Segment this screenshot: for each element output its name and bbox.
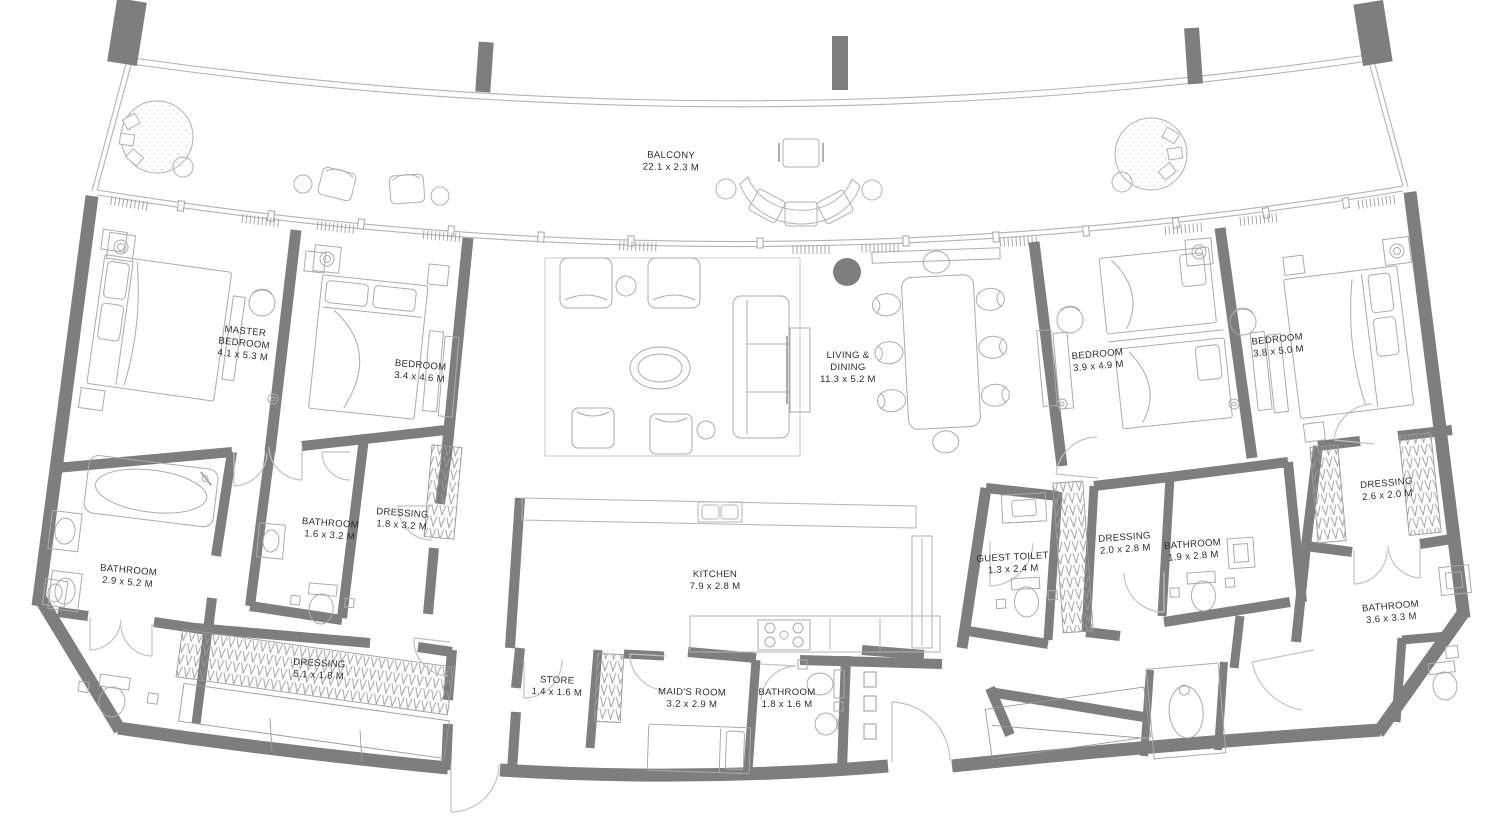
- svg-text:1.9 x 2.8 M: 1.9 x 2.8 M: [1168, 549, 1219, 564]
- balcony-chair-left-2: [389, 173, 425, 204]
- living-side-table: [616, 276, 636, 296]
- column: [833, 258, 861, 286]
- room-label-kitchen: KITCHEN 7.9 x 2.8 M: [690, 569, 741, 592]
- room-label-living-dining: LIVING & DINING 11.3 x 5.2 M: [820, 350, 876, 385]
- room-label-dressing-3: DRESSING 2.0 x 2.8 M: [1098, 530, 1152, 557]
- bathroom3-vanity: [1227, 537, 1255, 569]
- svg-text:7.9 x 2.8 M: 7.9 x 2.8 M: [690, 581, 741, 592]
- planter-right: [1112, 118, 1187, 192]
- room-label-master-bedroom: MASTER BEDROOM 4.1 x 5.3 M: [217, 323, 272, 363]
- balcony-chair-left-1: [317, 166, 357, 202]
- room-label-bathroom-2: BATHROOM 1.6 x 3.2 M: [301, 516, 360, 543]
- sofa-side-table-left: [716, 179, 736, 199]
- door-arc: [121, 624, 152, 656]
- svg-text:STORE: STORE: [540, 674, 575, 686]
- balcony-structure: [92, 55, 1408, 247]
- svg-text:1.8 x 3.2 M: 1.8 x 3.2 M: [376, 518, 427, 533]
- bedroom3-armchair: [1057, 307, 1083, 333]
- master-armchair: [249, 290, 275, 316]
- maid-sink: [815, 713, 837, 735]
- living-armchair-1: [560, 258, 612, 308]
- svg-text:1.4 x 1.6 M: 1.4 x 1.6 M: [531, 686, 582, 699]
- bedroom2-bed: [290, 251, 450, 421]
- curved-sofa: [740, 177, 860, 226]
- room-label-store: STORE 1.4 x 1.6 M: [531, 674, 583, 699]
- svg-text:2.0 x 2.8 M: 2.0 x 2.8 M: [1100, 542, 1151, 557]
- bedroom2-ac-unit: [313, 245, 342, 274]
- toilet-3: [1169, 570, 1237, 613]
- svg-text:LIVING &: LIVING &: [827, 350, 870, 361]
- balcony-right-end: [1367, 55, 1408, 187]
- svg-text:1.8 x 1.6 M: 1.8 x 1.6 M: [762, 699, 813, 710]
- sofa-side-table-right: [862, 180, 882, 200]
- room-name: BALCONY: [647, 150, 695, 162]
- door-arc: [1252, 650, 1314, 710]
- floor-grilles: [111, 195, 1395, 254]
- room-label-bedroom-4: BEDROOM 3.8 x 5.0 M: [1251, 331, 1305, 359]
- room-label-bathroom-master: BATHROOM 2.9 x 5.2 M: [99, 563, 158, 591]
- hall-niches: [864, 672, 876, 739]
- maid-bed: [647, 724, 751, 774]
- room-label-bedroom-2: BEDROOM 3.4 x 4.6 M: [393, 358, 446, 385]
- balcony-side-table-2: [431, 187, 449, 205]
- floor-plan-page: BALCONY 22.1 x 2.3 M MASTER BEDROOM 4.1 …: [0, 0, 1500, 816]
- ottoman-1: [572, 408, 614, 448]
- room-dims: 22.1 x 2.3 M: [643, 162, 700, 174]
- svg-text:BATHROOM: BATHROOM: [758, 687, 815, 698]
- door-arc: [1124, 572, 1164, 612]
- room-label-bathroom-3: BATHROOM 1.9 x 2.8 M: [1164, 537, 1223, 564]
- svg-text:MAID'S ROOM: MAID'S ROOM: [658, 686, 726, 698]
- door-arc: [451, 764, 499, 812]
- door-arc: [1388, 544, 1420, 578]
- living-round-table: [697, 421, 715, 439]
- balcony-outer-edge-2: [131, 61, 1369, 107]
- wardrobes: [176, 433, 1441, 762]
- svg-text:KITCHEN: KITCHEN: [693, 569, 737, 580]
- svg-text:3.2 x 2.9 M: 3.2 x 2.9 M: [666, 699, 717, 711]
- balcony-outer-edge: [133, 55, 1367, 101]
- tv-unit: [787, 328, 810, 412]
- svg-text:1.6 x 3.2 M: 1.6 x 3.2 M: [304, 528, 355, 543]
- svg-text:DINING: DINING: [830, 362, 865, 373]
- coffee-table: [630, 347, 690, 389]
- wardrobe-guest-band: [1053, 481, 1093, 633]
- bedroom3-beds: [1099, 246, 1232, 429]
- cooktop: [758, 620, 810, 650]
- room-label-dressing-4: DRESSING 2.6 x 2.0 M: [1360, 476, 1414, 503]
- room-label-dressing-2: DRESSING 1.8 x 3.2 M: [375, 506, 429, 533]
- room-label-bathroom-4: BATHROOM 3.6 x 3.3 M: [1362, 599, 1421, 627]
- small-table: [1229, 399, 1239, 409]
- wardrobe-dressing-1-8: [424, 445, 462, 539]
- living-armchair-2: [648, 258, 700, 308]
- room-label-bedroom-3: BEDROOM 3.9 x 4.9 M: [1071, 347, 1124, 374]
- ottoman-2: [650, 414, 692, 454]
- floor-plan: BALCONY 22.1 x 2.3 M MASTER BEDROOM 4.1 …: [0, 0, 1500, 816]
- room-label-balcony: BALCONY 22.1 x 2.3 M: [643, 150, 700, 174]
- door-arc-entrance: [892, 702, 950, 762]
- door-arc: [90, 618, 121, 650]
- door-arc: [1354, 550, 1387, 584]
- svg-text:1.3 x 2.4 M: 1.3 x 2.4 M: [988, 563, 1039, 577]
- svg-text:11.3 x 5.2 M: 11.3 x 5.2 M: [820, 374, 876, 385]
- room-label-bathroom-maid: BATHROOM 1.8 x 1.6 M: [758, 687, 815, 710]
- bedroom4-ac-unit: [1383, 237, 1412, 266]
- room-label-maids-room: MAID'S ROOM 3.2 x 2.9 M: [658, 686, 726, 710]
- dining-table: [870, 248, 1012, 457]
- door-arc: [322, 452, 350, 480]
- balcony-side-table-1: [294, 175, 312, 193]
- room-label-dressing-master: DRESSING 5.1 x 1.8 M: [292, 657, 346, 683]
- balcony-fire-table: [779, 139, 823, 167]
- room-label-guest-toilet: GUEST TOILET 1.3 x 2.4 M: [976, 550, 1049, 577]
- wardrobe-store: [594, 653, 624, 722]
- sofa: [733, 296, 789, 438]
- planter-left: [119, 101, 193, 177]
- wardrobe-dressing-2-6-left: [1310, 445, 1346, 543]
- bathroom4-item: [1445, 645, 1458, 658]
- console-table: [872, 248, 1000, 263]
